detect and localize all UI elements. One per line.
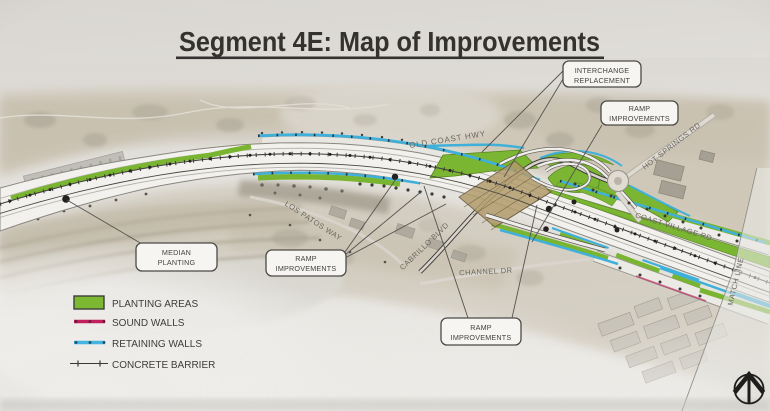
svg-text:RAMP: RAMP <box>295 254 317 263</box>
svg-text:RAMP: RAMP <box>629 104 651 113</box>
svg-text:REPLACEMENT: REPLACEMENT <box>574 76 631 85</box>
svg-text:Segment 4E: Map of Improvement: Segment 4E: Map of Improvements <box>179 26 600 57</box>
svg-text:CONCRETE BARRIER: CONCRETE BARRIER <box>112 360 215 371</box>
svg-text:INTERCHANGE: INTERCHANGE <box>575 66 630 75</box>
svg-text:MEDIAN: MEDIAN <box>162 248 191 257</box>
svg-text:SOUND WALLS: SOUND WALLS <box>112 318 185 329</box>
svg-text:PLANTING AREAS: PLANTING AREAS <box>112 299 198 310</box>
svg-text:RETAINING WALLS: RETAINING WALLS <box>112 339 202 350</box>
svg-text:IMPROVEMENTS: IMPROVEMENTS <box>609 114 670 123</box>
svg-text:RAMP: RAMP <box>470 323 492 332</box>
svg-text:IMPROVEMENTS: IMPROVEMENTS <box>451 333 512 342</box>
svg-text:PLANTING: PLANTING <box>158 258 196 267</box>
svg-text:IMPROVEMENTS: IMPROVEMENTS <box>276 264 337 273</box>
